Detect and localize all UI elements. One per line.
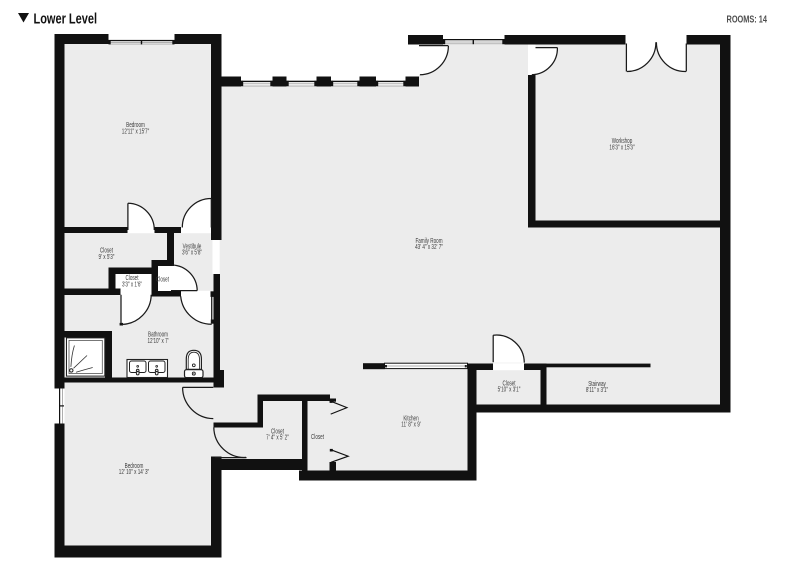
svg-text:7' 4" x 5' 2": 7' 4" x 5' 2": [266, 433, 289, 442]
svg-text:12' 10" x 14' 3": 12' 10" x 14' 3": [119, 467, 150, 476]
svg-text:3'6" x 5'8": 3'6" x 5'8": [182, 248, 202, 257]
svg-text:8'11" x 3'1": 8'11" x 3'1": [586, 385, 609, 394]
svg-text:Lower Level: Lower Level: [34, 11, 98, 27]
svg-text:12'11" x 15'7": 12'11" x 15'7": [122, 126, 150, 135]
svg-text:3'3" x 1'6": 3'3" x 1'6": [122, 279, 142, 288]
svg-text:16'3" x 15'3": 16'3" x 15'3": [609, 142, 634, 151]
svg-text:12'10" x 7': 12'10" x 7': [148, 336, 169, 345]
svg-text:Closet: Closet: [156, 274, 169, 283]
svg-text:43' 4" x 32' 7": 43' 4" x 32' 7": [415, 242, 443, 251]
svg-text:ROOMS: 14: ROOMS: 14: [727, 13, 768, 25]
svg-text:Closet: Closet: [311, 432, 324, 441]
svg-text:9' x 5'3": 9' x 5'3": [99, 252, 115, 261]
svg-text:11' 8" x 9': 11' 8" x 9': [401, 420, 421, 429]
svg-text:5'10" x 3'1": 5'10" x 3'1": [498, 385, 521, 394]
